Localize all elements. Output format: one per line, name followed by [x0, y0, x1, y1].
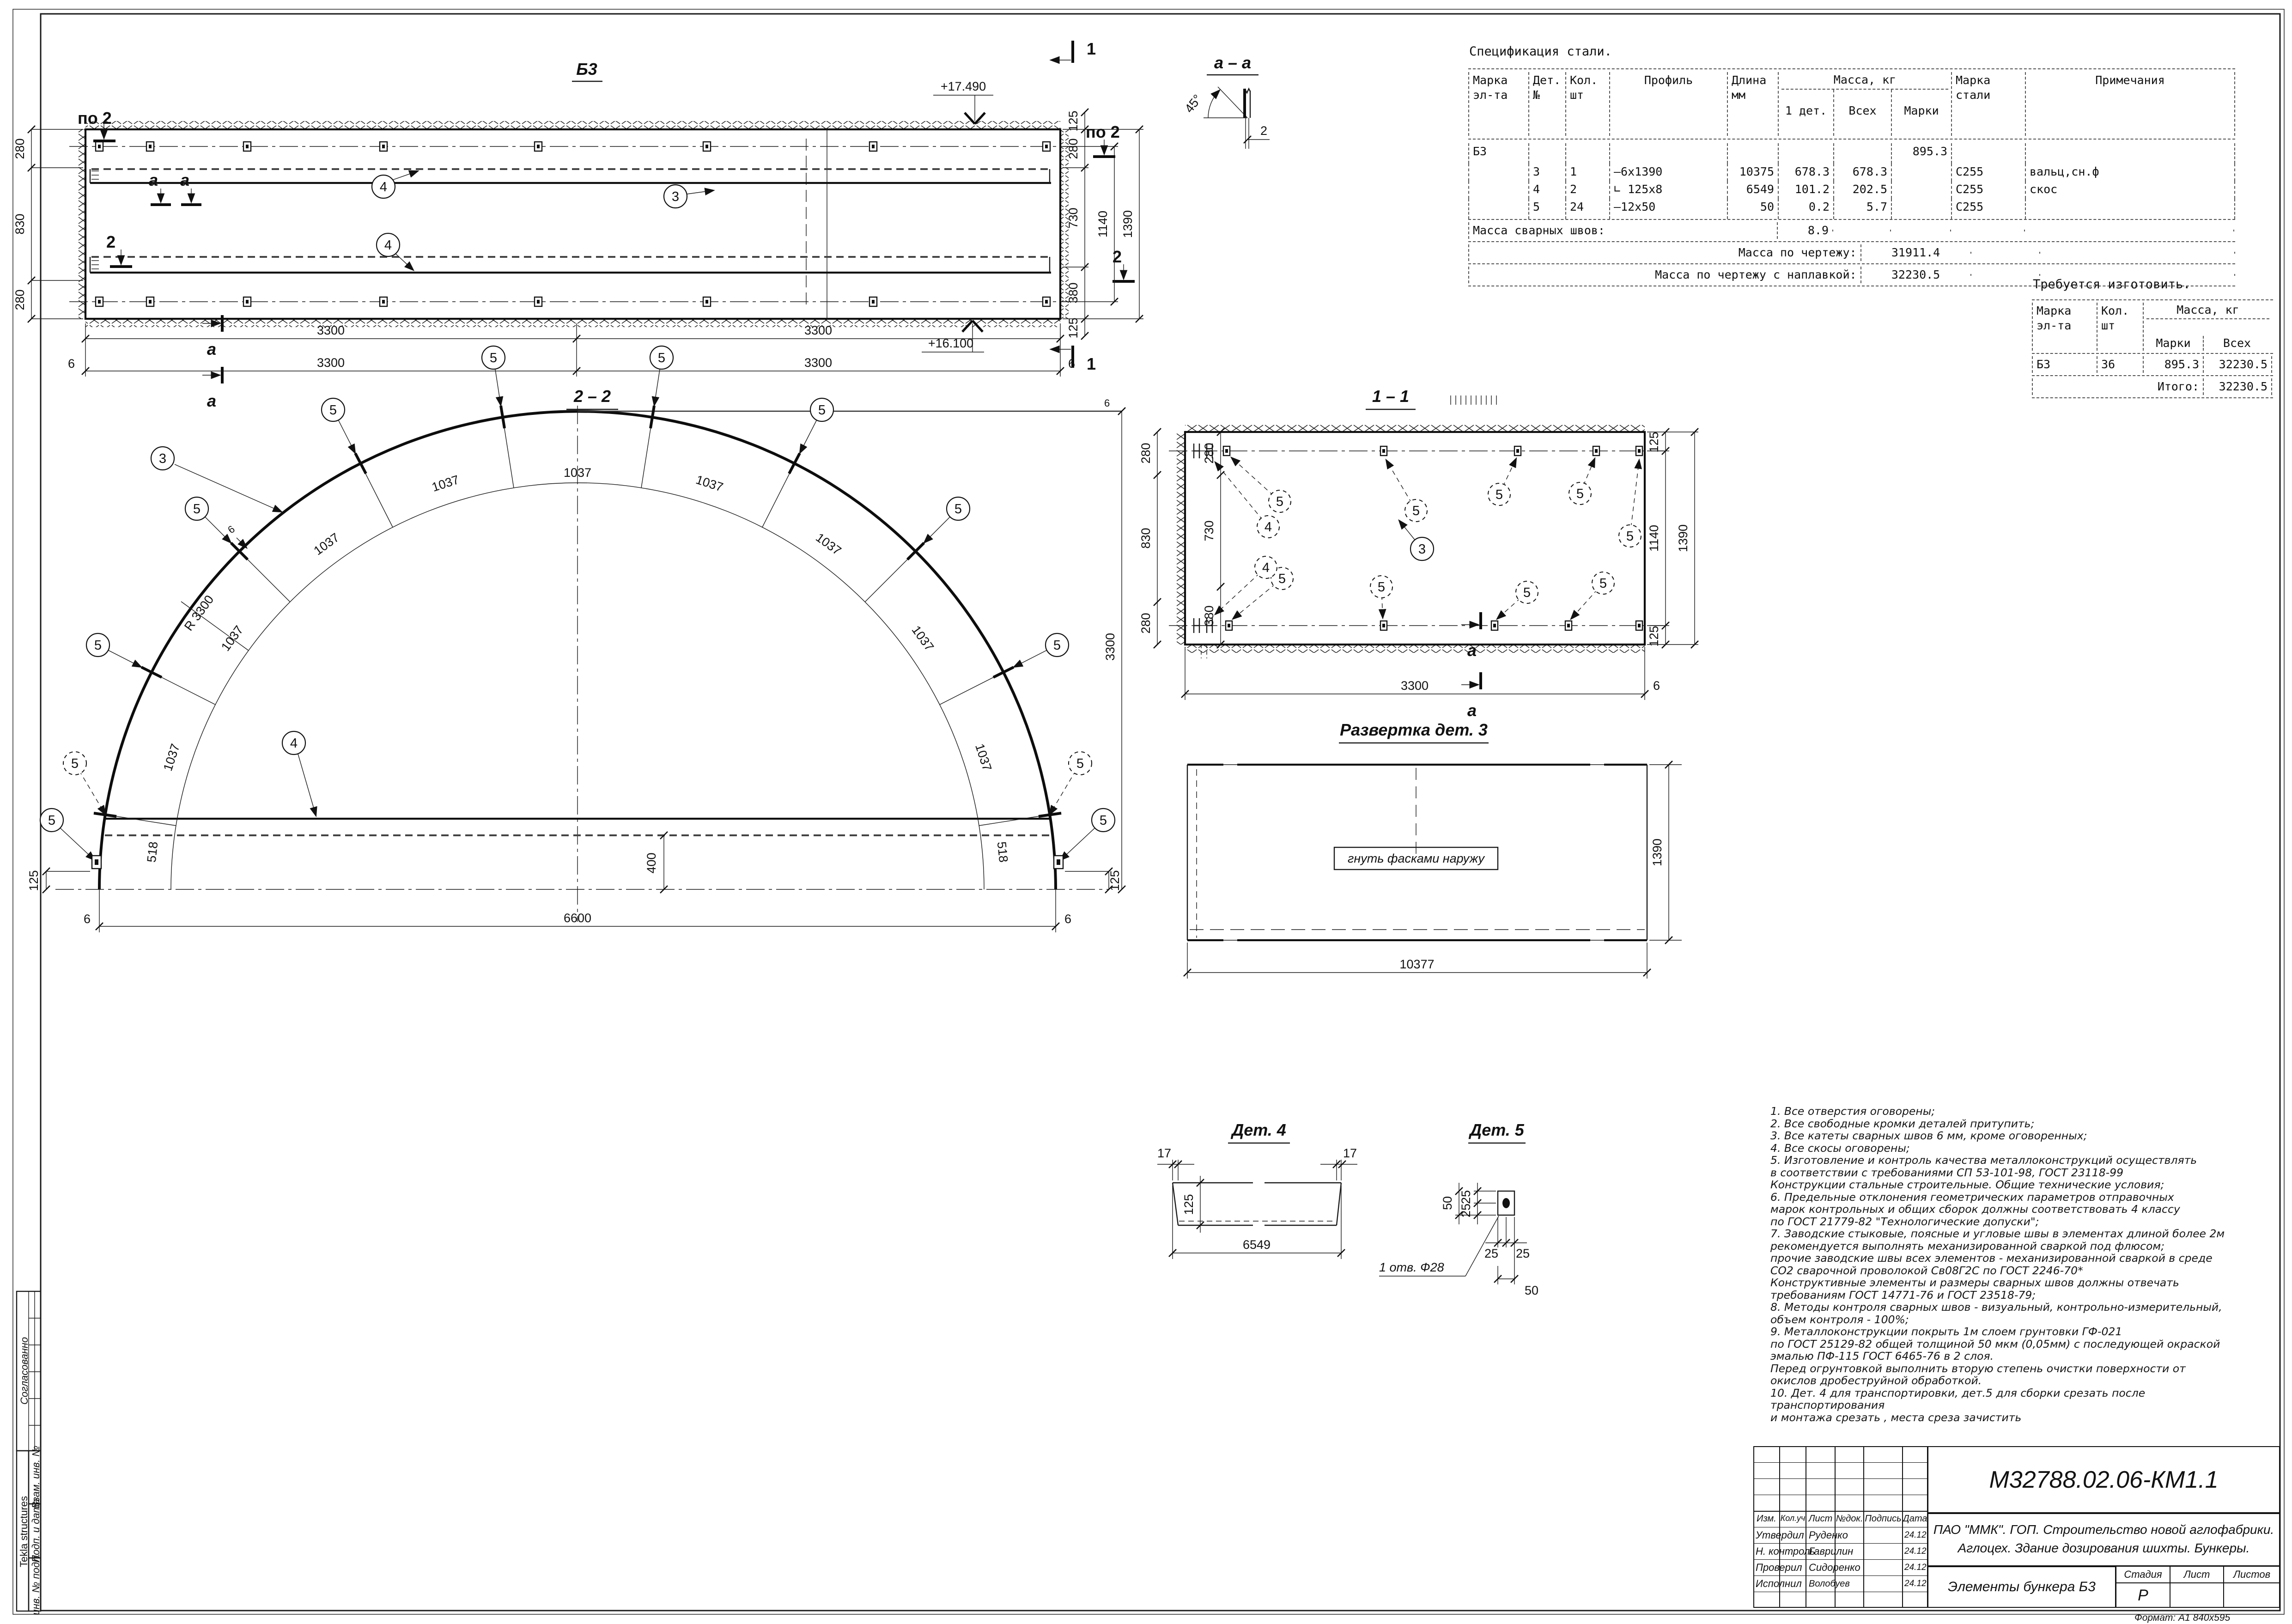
svg-text:3: 3: [159, 451, 166, 466]
svg-text:6: 6: [1068, 357, 1075, 371]
svg-text:5: 5: [193, 502, 201, 517]
spec-col-qty: Кол.шт: [1565, 72, 1609, 136]
general-notes: 1. Все отверстия оговорены; 2. Все свобо…: [1770, 1105, 2260, 1423]
det4-title: Дет. 4: [1230, 1120, 1286, 1139]
svg-text:а: а: [180, 170, 189, 189]
welds-mass-row: Масса сварных швов: 8.9: [1468, 220, 2235, 241]
detail-a-a: а – а 45° 2: [1182, 53, 1270, 149]
tb-h-koluch: Кол.уч: [1780, 1514, 1806, 1523]
view-1-1-title: 1 – 1: [1372, 387, 1409, 406]
tb-project-cell: [1927, 1513, 2280, 1566]
tb-name-4: Волобуев: [1809, 1579, 1850, 1589]
tb-h-list: Лист: [1806, 1514, 1835, 1524]
svg-text:1037: 1037: [311, 530, 342, 558]
svg-text:5: 5: [818, 403, 826, 418]
svg-text:5: 5: [94, 638, 102, 653]
spec-table-title: Спецификация стали.: [1469, 44, 1612, 59]
s11-callouts: 5 5 5 5 5 5 5 5 5 4 4 3: [1215, 457, 1641, 619]
tb-h-podpis: Подпись: [1864, 1514, 1903, 1524]
svg-text:125: 125: [1066, 110, 1080, 131]
svg-text:а: а: [207, 340, 216, 359]
tb-project-line2: Аглоцех. Здание дозирования шихты. Бунке…: [1927, 1541, 2280, 1556]
svg-text:25: 25: [1484, 1247, 1498, 1260]
s11-clips: [1223, 446, 1642, 630]
svg-text:280: 280: [1066, 138, 1080, 159]
svg-text:50: 50: [1441, 1196, 1454, 1210]
svg-text:280: 280: [1139, 613, 1153, 633]
inv-label: инв. № подл.: [30, 1553, 42, 1615]
table-row: 4 2∟ 125х8 6549101.2 202.5 С255скос: [1468, 181, 2235, 199]
svg-text:5: 5: [1576, 487, 1584, 501]
svg-text:6: 6: [1653, 679, 1660, 693]
svg-text:730: 730: [1202, 520, 1216, 541]
svg-text:1037: 1037: [813, 530, 844, 558]
svg-text:25: 25: [1459, 1190, 1473, 1204]
tb-role-2: Н. контроль: [1756, 1545, 1815, 1557]
s11-dimensions: 280 830 280 280 730 380 125 1140 125 139…: [1139, 428, 1698, 720]
svg-text:1140: 1140: [1096, 211, 1110, 237]
b3-angle-bands: [90, 169, 1051, 273]
svg-text:3300: 3300: [317, 356, 345, 370]
spec-col-profile: Профиль: [1609, 72, 1727, 136]
svg-text:125: 125: [1066, 317, 1080, 338]
tb-project-line1: ПАО "ММК". ГОП. Строительство новой агло…: [1927, 1522, 2280, 1537]
svg-text:280: 280: [13, 138, 27, 159]
svg-text:6: 6: [225, 523, 237, 535]
svg-text:4: 4: [384, 238, 392, 253]
svg-text:1390: 1390: [1650, 839, 1664, 866]
detail-a-a-title: а – а: [1214, 53, 1251, 72]
svg-text:17: 17: [1157, 1146, 1171, 1160]
svg-text:1037: 1037: [564, 466, 591, 480]
svg-text:5: 5: [1076, 756, 1084, 771]
podp-label: Подп. и дата: [30, 1499, 42, 1563]
svg-text:2: 2: [1113, 247, 1122, 266]
svg-text:125: 125: [1647, 432, 1661, 452]
hatch-top: [85, 121, 1060, 129]
tb-date-1: 24.12: [1904, 1530, 1927, 1540]
tb-date-3: 24.12: [1904, 1563, 1927, 1573]
svg-text:5: 5: [1523, 585, 1531, 600]
view-det5: Дет. 5 25 25 50 25 25 50 1 отв. Ф28: [1379, 1120, 1538, 1297]
svg-text:25: 25: [1516, 1247, 1530, 1260]
tb-role-3: Проверил: [1756, 1562, 1802, 1574]
view-b3: Б3: [13, 39, 1143, 410]
svg-text:4: 4: [290, 736, 298, 751]
svg-text:17: 17: [1343, 1146, 1357, 1160]
svg-text:а: а: [149, 170, 158, 189]
svg-text:5: 5: [1378, 580, 1385, 595]
agreed-label: Согласованно: [18, 1337, 30, 1405]
bend-note: гнуть фасками наружу: [1348, 852, 1485, 865]
svg-text:4: 4: [1265, 520, 1272, 535]
spec-col-mark: Маркаэл-та: [1468, 72, 1528, 136]
svg-text:3: 3: [672, 189, 679, 204]
hole-note: 1 отв. Ф28: [1379, 1260, 1444, 1274]
svg-text:5: 5: [48, 813, 55, 828]
svg-text:1037: 1037: [973, 742, 994, 772]
svg-text:5: 5: [1053, 638, 1061, 653]
tb-stage-value: Р: [2116, 1583, 2170, 1608]
view-det4: Дет. 4 17 17 125 6549: [1157, 1120, 1357, 1259]
svg-text:730: 730: [1066, 207, 1080, 228]
svg-text:а: а: [207, 391, 216, 410]
svg-text:6549: 6549: [1243, 1238, 1271, 1252]
svg-text:125: 125: [1182, 1194, 1196, 1215]
svg-text:830: 830: [1139, 528, 1153, 548]
svg-text:125: 125: [27, 870, 41, 891]
svg-text:50: 50: [1525, 1283, 1538, 1297]
tb-name-2: Гаврилин: [1809, 1545, 1853, 1557]
svg-text:а: а: [1467, 701, 1477, 720]
svg-text:3300: 3300: [317, 323, 345, 337]
svg-text:1037: 1037: [909, 623, 936, 654]
tb-h-ndok: №док.: [1835, 1514, 1864, 1524]
svg-text:4: 4: [380, 180, 387, 195]
tb-name-3: Сидоренко: [1809, 1562, 1860, 1574]
svg-text:5: 5: [1496, 487, 1503, 502]
svg-text:6: 6: [68, 357, 75, 371]
view-1-1-ticks: [1451, 395, 1496, 405]
require-col-mass: Масса, кг Марки Всех: [2143, 303, 2272, 351]
tb-name-1: Руденко: [1809, 1529, 1848, 1541]
svg-text:5: 5: [490, 351, 497, 365]
svg-text:280: 280: [1139, 443, 1153, 463]
view-1-1: 1 – 1: [1139, 387, 1698, 720]
table-row: Б3 36 895.3 32230.5: [2032, 354, 2273, 375]
spec-col-note: Примечания: [2025, 72, 2235, 136]
tb-sheet-value: [2170, 1583, 2224, 1608]
view-2-2: 2 – 2: [27, 346, 1125, 932]
tb-role-4: Исполнил: [1756, 1578, 1802, 1590]
svg-text:по 2: по 2: [78, 109, 112, 128]
svg-text:125: 125: [1108, 870, 1122, 891]
svg-text:25: 25: [1459, 1204, 1473, 1217]
svg-text:5: 5: [658, 351, 665, 365]
b3-axis-rows: [69, 142, 1076, 306]
tb-h-stage: Стадия: [2116, 1566, 2170, 1583]
svg-text:5: 5: [1626, 529, 1634, 544]
svg-text:1: 1: [1087, 39, 1096, 58]
svg-text:а: а: [1467, 641, 1477, 660]
require-table: Маркаэл-та Кол.шт Масса, кг Марки Всех Б…: [2032, 299, 2273, 398]
table-row: 5 24–12х50 500.2 5.7 С255: [1468, 199, 2235, 219]
svg-text:3: 3: [1418, 542, 1426, 557]
require-table-title: Требуется изготовить.: [2033, 277, 2190, 292]
sidebar-stamp-strip: Согласованно Tekla structures Взам. инв.…: [17, 1291, 42, 1615]
svg-text:1390: 1390: [1676, 524, 1690, 552]
svg-text:400: 400: [644, 852, 658, 873]
tb-role-1: Утвердил: [1756, 1529, 1804, 1541]
steel-specification-table: Маркаэл-та Дет.№ Кол.шт Профиль Длинамм …: [1468, 68, 2235, 286]
tb-h-izm: Изм.: [1753, 1514, 1780, 1524]
tb-sheets-value: [2224, 1583, 2280, 1608]
spec-col-steel: Маркастали: [1951, 72, 2025, 136]
svg-text:6: 6: [84, 912, 91, 926]
view-razvertka: Развертка дет. 3 гнуть фасками наружу 13…: [1184, 720, 1682, 979]
svg-text:5: 5: [329, 403, 337, 418]
tb-h-data: Дата: [1903, 1514, 1927, 1524]
svg-text:5: 5: [71, 756, 79, 771]
svg-text:по 2: по 2: [1086, 122, 1120, 141]
svg-text:3300: 3300: [1103, 633, 1117, 661]
svg-text:6: 6: [1104, 397, 1110, 409]
svg-text:5: 5: [1412, 504, 1420, 518]
svg-text:6600: 6600: [564, 911, 591, 925]
svg-text:3300: 3300: [804, 323, 832, 337]
b3-elevations: +17.490 +16.100: [922, 79, 993, 352]
spec-col-mass: Масса, кг 1 дет. Всех Марки: [1778, 72, 1951, 136]
total-row: Итого: 32230.5: [2032, 376, 2273, 397]
svg-text:830: 830: [13, 213, 27, 234]
svg-text:45°: 45°: [1182, 92, 1205, 116]
svg-text:2: 2: [1260, 124, 1267, 138]
svg-text:5: 5: [954, 502, 962, 517]
b3-dimensions: 280 830 280 125 280 730 380 125 1140 139…: [13, 109, 1143, 377]
svg-text:1140: 1140: [1647, 525, 1661, 552]
tb-doc-number: М32788.02.06-КМ1.1: [1927, 1446, 2280, 1513]
svg-text:5: 5: [1276, 494, 1283, 509]
svg-text:518: 518: [995, 841, 1011, 863]
view-b3-title: Б3: [576, 60, 597, 79]
svg-text:1: 1: [1087, 354, 1096, 373]
require-col-mark: Маркаэл-та: [2032, 303, 2097, 351]
svg-text:380: 380: [1202, 605, 1216, 626]
svg-text:1037: 1037: [430, 473, 461, 494]
svg-text:5: 5: [1278, 572, 1286, 586]
svg-text:1037: 1037: [694, 473, 725, 494]
view-2-2-title: 2 – 2: [573, 387, 611, 406]
svg-text:6: 6: [1064, 912, 1071, 926]
b3-callouts: 4 4 3: [372, 171, 714, 270]
det5-title: Дет. 5: [1468, 1120, 1525, 1139]
table-row: 3 1–6х1390 10375678.3 678.3 С255вальц,сн…: [1468, 164, 2235, 181]
svg-text:+17.490: +17.490: [941, 79, 986, 93]
tb-sheet-title: Элементы бункера Б3: [1927, 1566, 2116, 1608]
spec-col-len: Длинамм: [1727, 72, 1778, 136]
format-note: Формат: А1 840х595: [2134, 1612, 2230, 1624]
table-row: Б3 895.3: [1468, 143, 2235, 164]
drawing-mass-row: Масса по чертежу: 31911.4: [1468, 242, 2235, 263]
tb-h-sheet: Лист: [2170, 1566, 2224, 1583]
tb-date-4: 24.12: [1904, 1579, 1927, 1589]
razvertka-title: Развертка дет. 3: [1340, 720, 1488, 739]
svg-text:3300: 3300: [1401, 679, 1429, 693]
svg-text:2: 2: [106, 232, 116, 251]
svg-text:280: 280: [1202, 443, 1216, 463]
svg-text:125: 125: [1647, 626, 1661, 646]
tb-date-2: 24.12: [1904, 1546, 1927, 1557]
svg-text:518: 518: [145, 841, 161, 863]
svg-text:10377: 10377: [1399, 957, 1434, 971]
tb-h-sheets: Листов: [2224, 1566, 2280, 1583]
require-col-qty: Кол.шт: [2097, 303, 2143, 351]
tekla-label: Tekla structures: [18, 1496, 30, 1567]
b3-clips: [96, 142, 1050, 306]
svg-text:1037: 1037: [161, 742, 182, 772]
drawing-sheet: Согласованно Tekla structures Взам. инв.…: [0, 0, 2292, 1624]
svg-text:5: 5: [1599, 576, 1607, 591]
svg-text:280: 280: [13, 289, 27, 310]
svg-text:380: 380: [1066, 282, 1080, 303]
svg-text:5: 5: [1100, 813, 1107, 828]
spec-col-det: Дет.№: [1528, 72, 1565, 136]
svg-text:4: 4: [1262, 560, 1270, 575]
svg-text:3300: 3300: [804, 356, 832, 370]
svg-text:1390: 1390: [1121, 210, 1135, 238]
